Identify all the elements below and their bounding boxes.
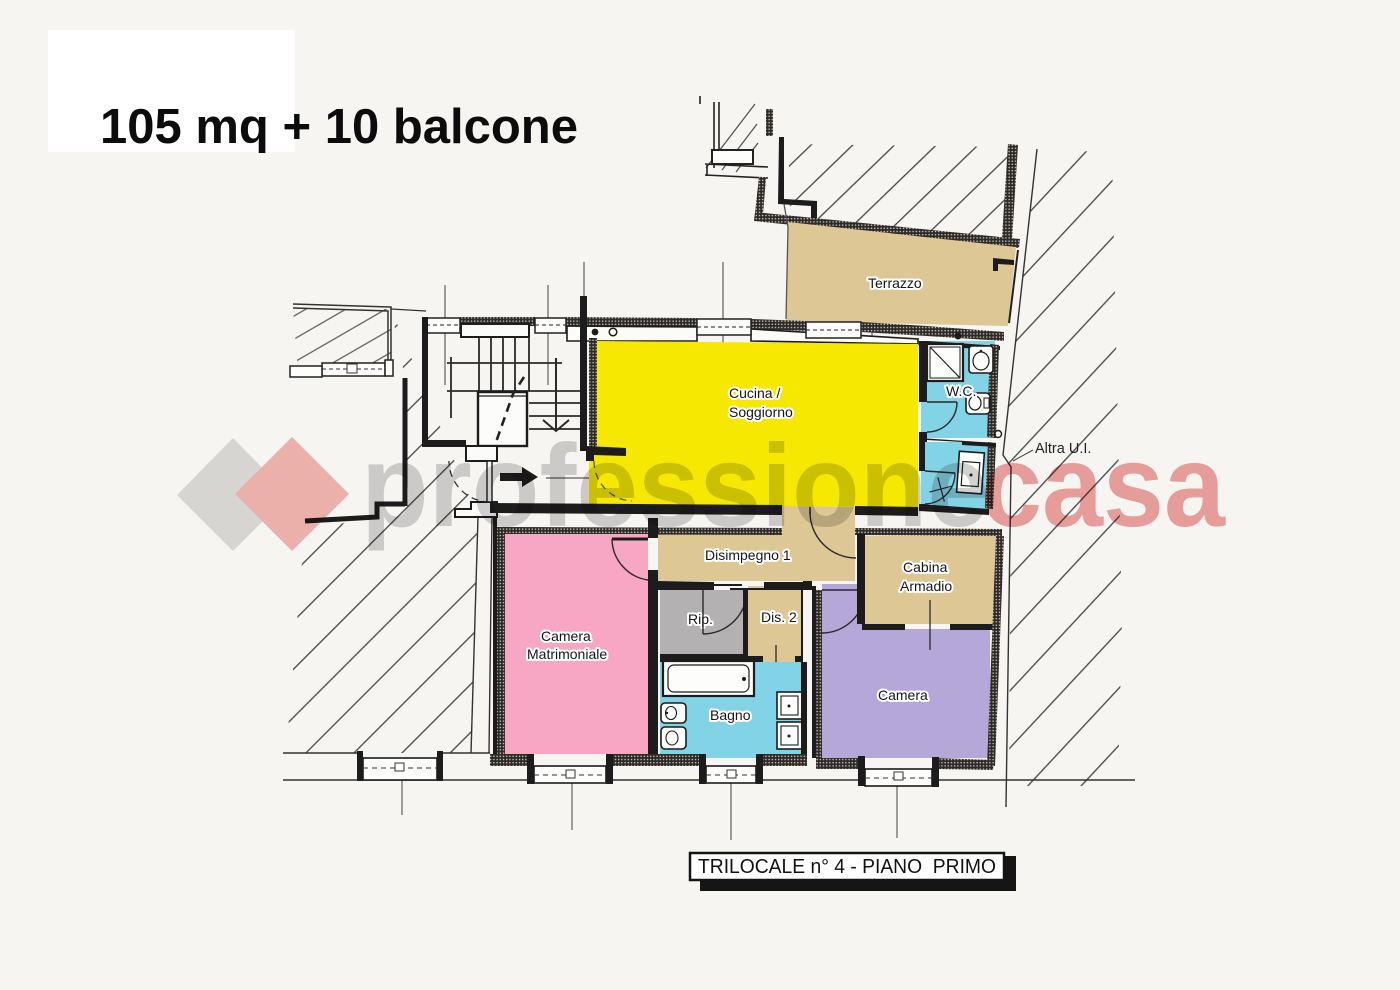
svg-text:105 mq + 10 balcone: 105 mq + 10 balcone	[100, 100, 578, 154]
svg-text:Terrazzo: Terrazzo	[868, 275, 922, 291]
svg-text:Matrimoniale: Matrimoniale	[527, 646, 607, 662]
svg-text:Camera: Camera	[878, 687, 928, 703]
svg-text:Soggiorno: Soggiorno	[729, 404, 793, 420]
svg-text:Dis. 2: Dis. 2	[761, 609, 797, 625]
svg-text:Camera: Camera	[541, 628, 591, 644]
svg-text:Bagno: Bagno	[710, 707, 751, 723]
svg-text:Cabina: Cabina	[903, 559, 948, 575]
svg-text:Cucina /: Cucina /	[729, 385, 780, 401]
svg-text:Armadio: Armadio	[900, 578, 952, 594]
svg-text:TRILOCALE n° 4 - PIANO PRIMO: TRILOCALE n° 4 - PIANO PRIMO	[698, 855, 996, 878]
svg-text:Rip.: Rip.	[688, 611, 713, 627]
svg-text:casa: casa	[981, 420, 1226, 551]
svg-text:W.C.: W.C.	[946, 383, 976, 399]
svg-text:professione: professione	[361, 420, 989, 551]
